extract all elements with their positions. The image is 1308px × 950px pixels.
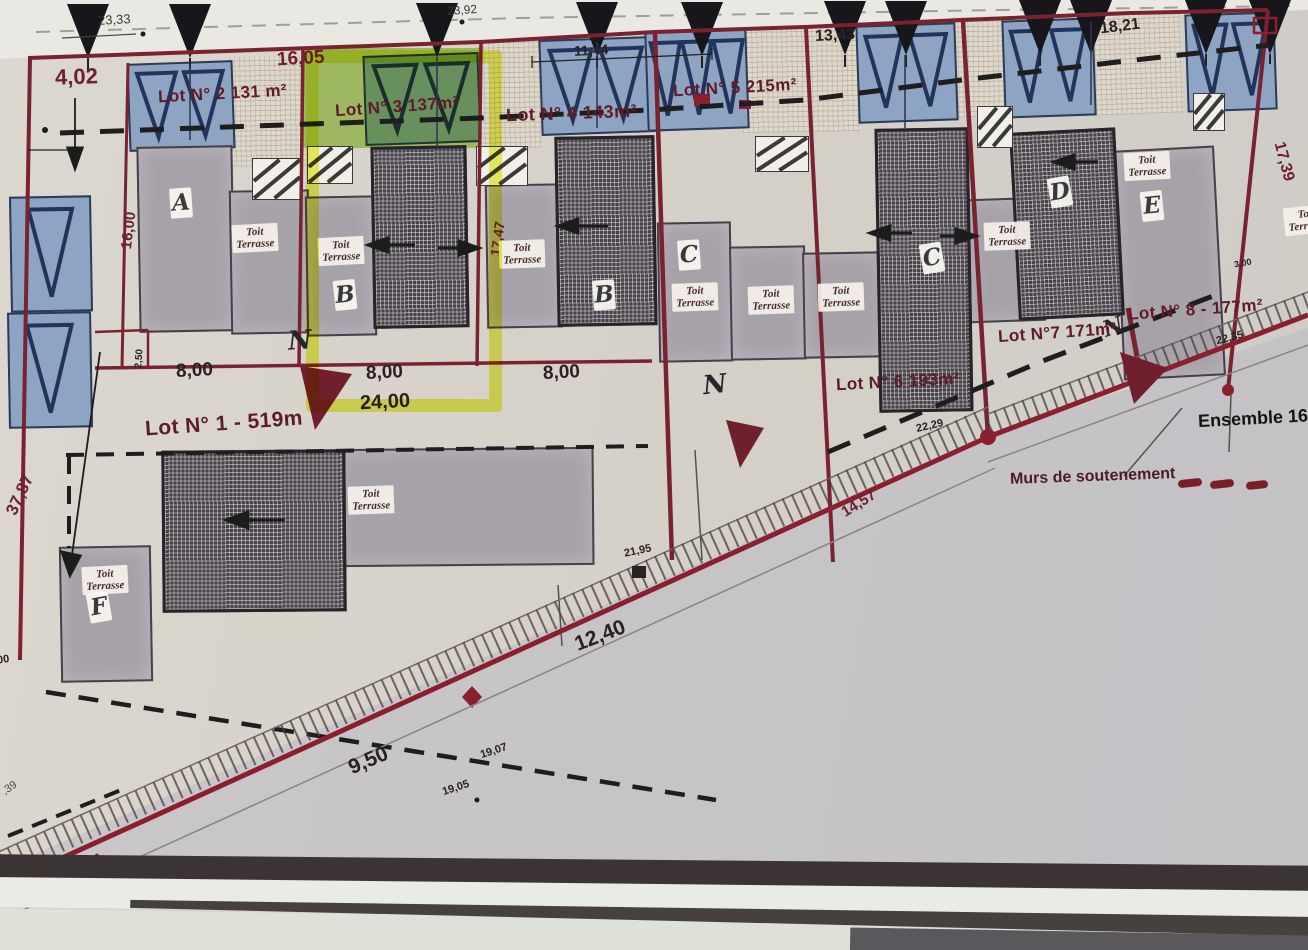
- building-letter-b: B: [592, 279, 616, 310]
- dim-8-00-c: 8,00: [542, 361, 580, 385]
- building-letter-c: C: [677, 239, 701, 270]
- dim-4-02: 4,02: [55, 63, 99, 90]
- dim-23-92: 23,92: [447, 2, 478, 18]
- lot3-highlight-marker: [306, 50, 502, 412]
- dim-11-44: 11,44: [574, 41, 609, 59]
- road: [0, 292, 1308, 925]
- roof-terrace-label: ToitTerrasse: [984, 221, 1031, 251]
- roof-terrace-label: ToitTerrasse: [818, 282, 865, 312]
- site-plan-photo: 23,33 23,92 4,02 16,05 Lot N° 2 131 m² L…: [0, 0, 1308, 950]
- dim-edge-00: ,00: [0, 653, 10, 667]
- murs-legend-dashes: [1178, 478, 1269, 490]
- property-dashed-lines: [8, 45, 1270, 836]
- dim-2-50: 2,50: [133, 349, 146, 369]
- roof-terrace-label: ToitTerrasse: [672, 282, 719, 312]
- dim-23-33: 23,33: [98, 11, 131, 28]
- roof-terrace-label-clipped: ToitTerrasse: [1283, 204, 1308, 237]
- roof-terrace-label: ToitTerrasse: [231, 223, 279, 254]
- north-letter: N: [701, 369, 728, 401]
- roof-terrace-label: ToitTerrasse: [748, 285, 795, 315]
- roof-terrace-label: ToitTerrasse: [499, 239, 546, 269]
- building-letter-e: E: [1139, 190, 1164, 222]
- direction-arrows: [42, 20, 1098, 803]
- dim-13-43: 13,43: [815, 26, 856, 46]
- dim-8-00-a: 8,00: [175, 359, 213, 383]
- roof-terrace-label: ToitTerrasse: [348, 485, 395, 515]
- roof-terrace-label: ToitTerrasse: [1123, 151, 1171, 182]
- building-letter-a: A: [169, 187, 193, 218]
